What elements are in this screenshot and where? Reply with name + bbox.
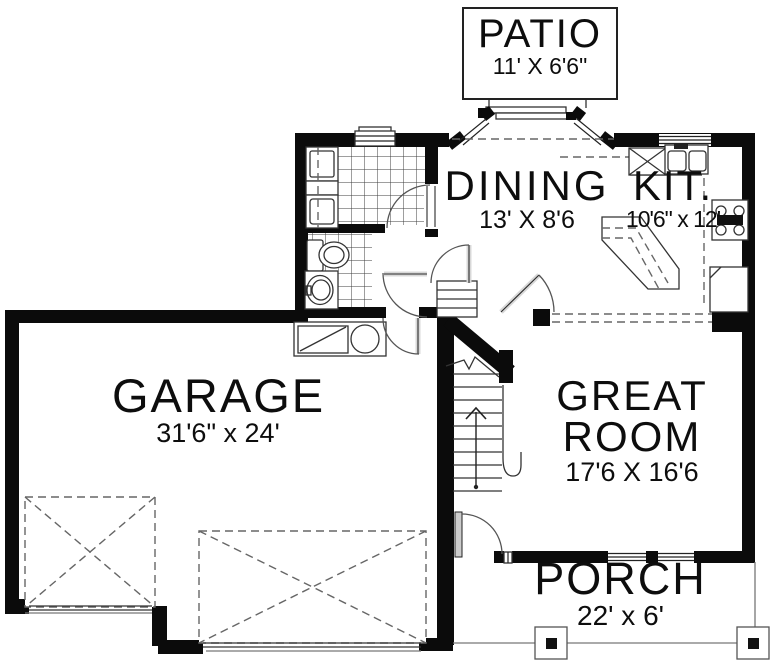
great-room-angled-door xyxy=(501,275,554,312)
dining-dimensions: 13' X 8'6 xyxy=(427,208,627,234)
stairs-up-arrow-icon xyxy=(466,408,486,489)
garage-double-door xyxy=(203,643,421,651)
room-label-porch: PORCH 22' x 6' xyxy=(518,556,723,630)
patio-dimensions: 11' X 6'6" xyxy=(463,55,617,78)
room-label-dining: DINING 13' X 8'6 xyxy=(427,165,627,233)
laundry-shelf xyxy=(306,181,338,195)
room-label-patio: PATIO 11' X 6'6" xyxy=(463,14,617,78)
room-label-kitchen: KIT. 10'6" x 12' xyxy=(598,165,748,231)
room-label-great-room: GREAT ROOM 17'6 X 16'6 xyxy=(528,376,736,487)
washer-icon xyxy=(306,147,338,181)
porch-post-right xyxy=(737,627,769,659)
garage-name: GARAGE xyxy=(112,372,324,420)
pantry-door xyxy=(431,245,469,283)
kitchen-dimensions: 10'6" x 12' xyxy=(598,208,748,231)
laundry-window xyxy=(355,127,395,146)
garage-dimensions: 31'6" x 24' xyxy=(112,420,324,448)
patio-name: PATIO xyxy=(463,14,617,55)
porch-post-left xyxy=(535,627,567,659)
garage-entry-door xyxy=(383,318,419,354)
pantry-shelves xyxy=(437,281,477,317)
archway-dashed-line xyxy=(552,314,712,322)
front-door xyxy=(455,512,502,557)
parking-stall-x-right xyxy=(199,531,426,643)
garage-workbench xyxy=(294,322,386,356)
parking-stall-x-left xyxy=(25,497,155,607)
great-room-dimensions: 17'6 X 16'6 xyxy=(528,459,736,487)
room-label-garage: GARAGE 31'6" x 24' xyxy=(112,372,324,447)
kitchen-name: KIT. xyxy=(598,165,748,208)
porch-dimensions: 22' x 6' xyxy=(518,602,723,631)
porch-name: PORCH xyxy=(518,556,723,602)
toilet-icon xyxy=(307,240,349,271)
dining-name: DINING xyxy=(427,165,627,208)
floor-plan: PATIO 11' X 6'6" DINING 13' X 8'6 KIT. 1… xyxy=(0,0,773,664)
bathroom-sink-icon xyxy=(305,271,338,309)
refrigerator-icon xyxy=(710,267,748,312)
great-room-name: GREAT ROOM xyxy=(528,376,736,457)
